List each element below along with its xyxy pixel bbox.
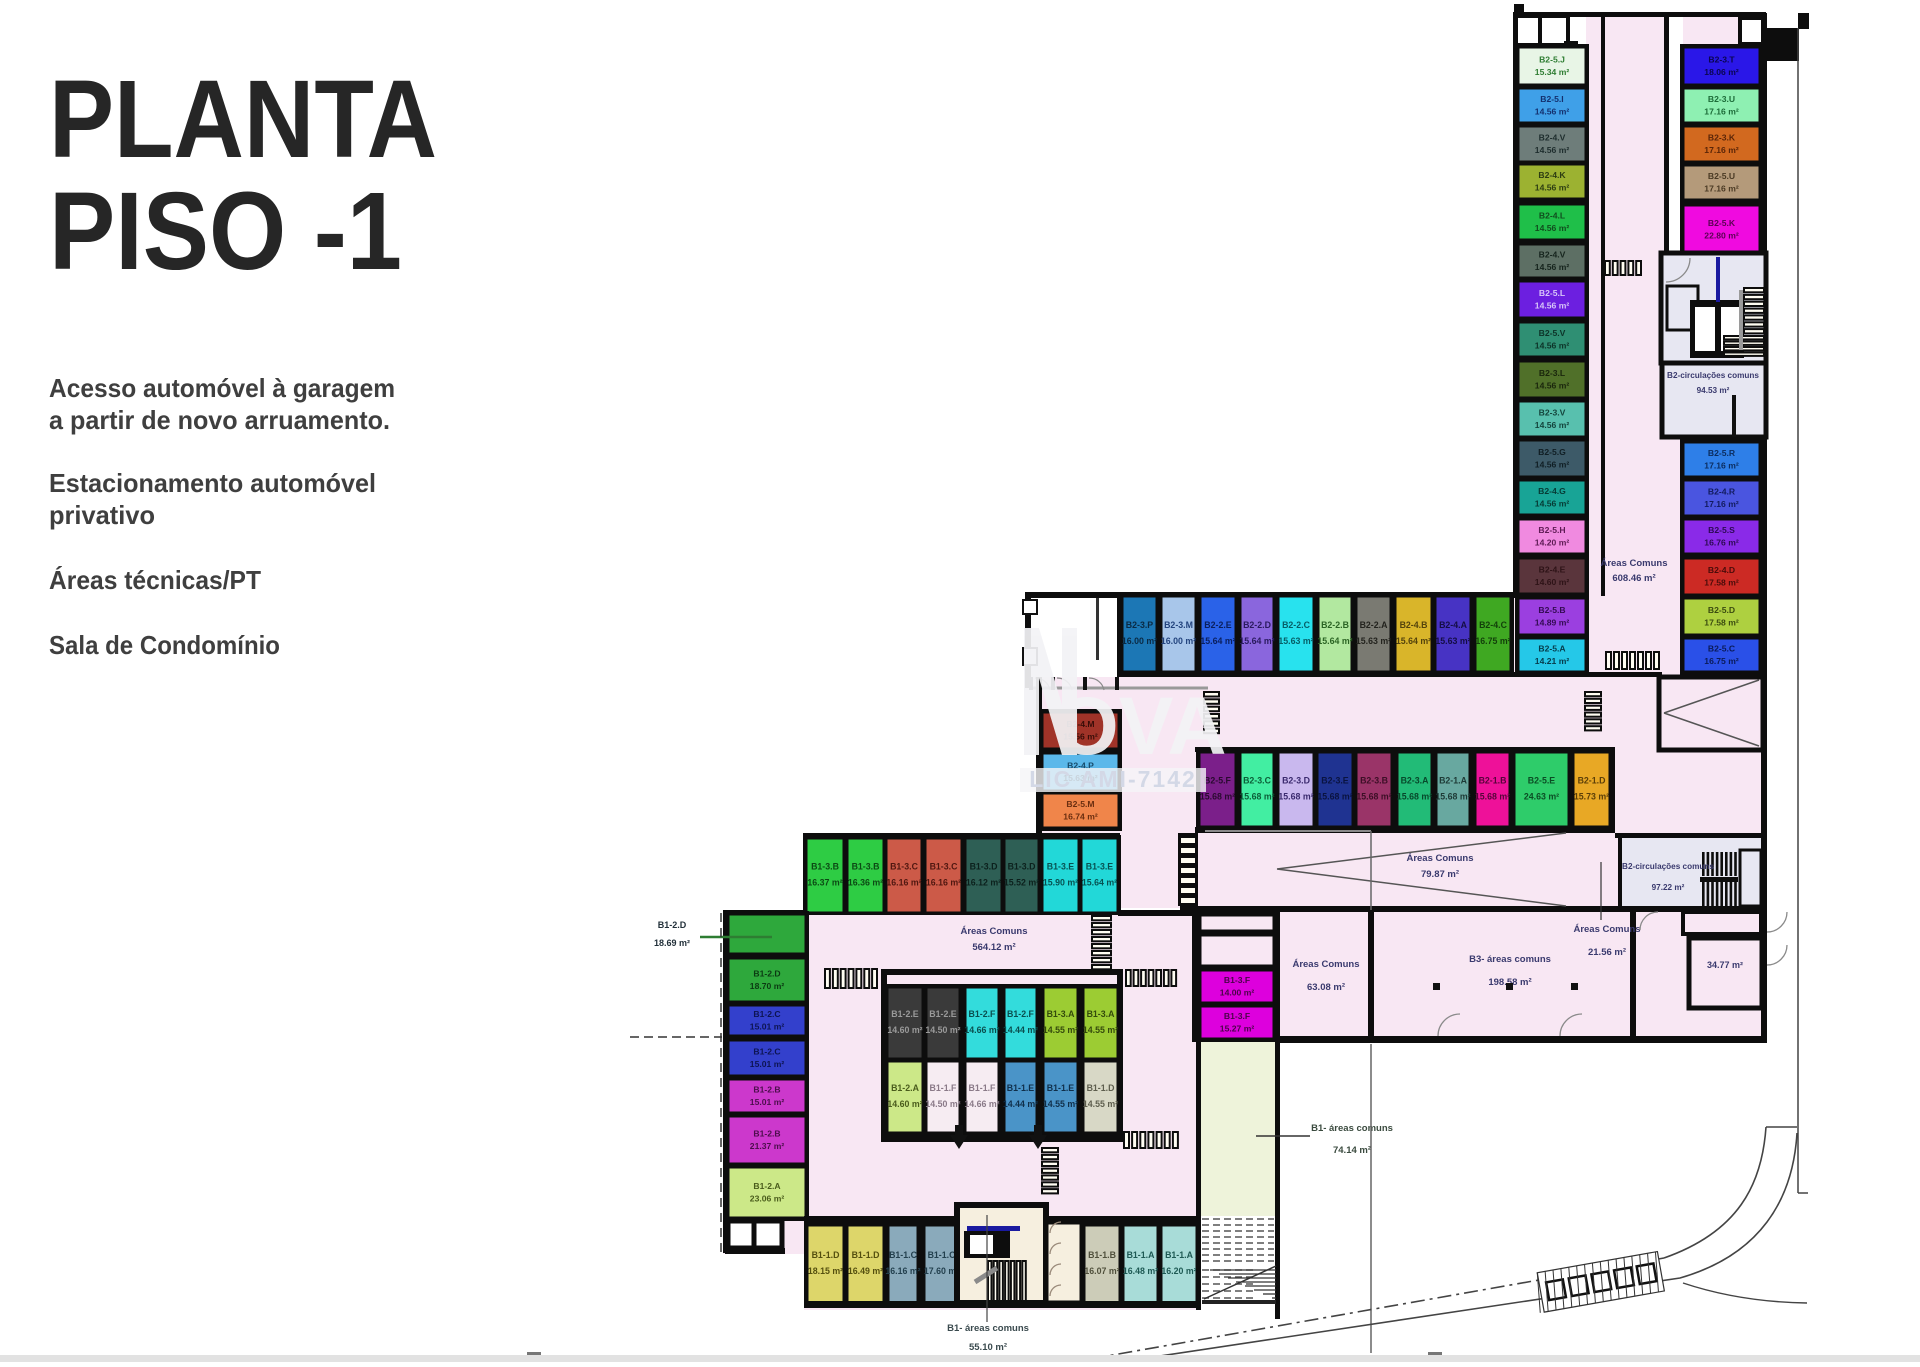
svg-text:14.56 m²: 14.56 m² [1535,341,1570,351]
svg-text:14.56 m²: 14.56 m² [1535,145,1570,155]
svg-text:14.56 m²: 14.56 m² [1535,460,1570,470]
svg-text:B1- áreas comuns: B1- áreas comuns [947,1323,1029,1334]
svg-text:14.20 m²: 14.20 m² [1535,538,1570,548]
svg-text:15.27 m²: 15.27 m² [1220,1024,1255,1034]
svg-text:B2-4.C: B2-4.C [1479,620,1508,630]
svg-text:17.16 m²: 17.16 m² [1704,107,1739,117]
svg-text:16.07 m²: 16.07 m² [1084,1266,1119,1276]
svg-text:B2-5.L: B2-5.L [1539,288,1565,298]
svg-text:608.46 m²: 608.46 m² [1612,573,1655,584]
svg-text:18.15 m²: 18.15 m² [808,1266,843,1276]
svg-text:B1-3.C: B1-3.C [890,862,919,872]
svg-text:B1-1.E: B1-1.E [1047,1083,1075,1093]
svg-text:16.74 m²: 16.74 m² [1063,812,1098,822]
svg-text:B1-1.D: B1-1.D [852,1250,880,1260]
svg-text:B2-4.L: B2-4.L [1539,211,1565,221]
svg-text:17.58 m²: 17.58 m² [1704,618,1739,628]
svg-text:14.21 m²: 14.21 m² [1535,656,1570,666]
svg-text:14.56 m²: 14.56 m² [1535,107,1570,117]
svg-text:14.50 m²: 14.50 m² [925,1099,960,1109]
svg-text:21.56 m²: 21.56 m² [1588,947,1626,958]
svg-text:PLANTA: PLANTA [49,58,437,181]
svg-text:B2-1.B: B2-1.B [1479,776,1507,786]
svg-text:B2-5.D: B2-5.D [1708,605,1735,615]
svg-text:14.60 m²: 14.60 m² [1535,577,1570,587]
svg-text:15.68 m²: 15.68 m² [1397,792,1432,802]
svg-text:B2-3.C: B2-3.C [1243,776,1272,786]
svg-text:Áreas técnicas/PT: Áreas técnicas/PT [49,565,261,595]
svg-text:B2-2.B: B2-2.B [1321,620,1349,630]
svg-text:74.14 m²: 74.14 m² [1333,1145,1371,1156]
svg-text:17.16 m²: 17.16 m² [1704,184,1739,194]
svg-text:PISO -1: PISO -1 [49,170,402,293]
svg-text:15.90 m²: 15.90 m² [1043,878,1078,888]
svg-text:14.56 m²: 14.56 m² [1535,381,1570,391]
svg-text:16.12 m²: 16.12 m² [966,878,1001,888]
svg-text:B1-1.D: B1-1.D [1087,1083,1115,1093]
svg-text:B2-2.D: B2-2.D [1243,620,1271,630]
svg-text:B1-2.E: B1-2.E [929,1009,957,1019]
svg-text:63.08 m²: 63.08 m² [1307,982,1345,993]
svg-text:B1-3.B: B1-3.B [852,862,880,872]
svg-text:B2-3.M: B2-3.M [1164,620,1193,630]
svg-text:14.56 m²: 14.56 m² [1535,499,1570,509]
svg-text:B1-3.A: B1-3.A [1087,1009,1116,1019]
svg-text:15.68 m²: 15.68 m² [1239,792,1274,802]
svg-text:B2-1.D: B2-1.D [1578,776,1606,786]
svg-text:16.16 m²: 16.16 m² [885,1266,920,1276]
svg-text:B1-1.B: B1-1.B [1088,1250,1116,1260]
svg-text:Áreas Comuns: Áreas Comuns [1406,853,1473,864]
svg-text:17.58 m²: 17.58 m² [1704,578,1739,588]
svg-text:B2-2.A: B2-2.A [1360,620,1389,630]
svg-text:B1-3.F: B1-3.F [1224,975,1250,985]
svg-text:16.20 m²: 16.20 m² [1161,1266,1196,1276]
svg-text:B2-1.A: B2-1.A [1439,776,1468,786]
svg-text:B2-5.K: B2-5.K [1708,218,1736,228]
svg-text:B2-5.J: B2-5.J [1539,55,1565,65]
svg-text:B2-4.B: B2-4.B [1400,620,1428,630]
svg-text:B2-3.L: B2-3.L [1539,368,1565,378]
svg-text:B2-5.H: B2-5.H [1538,525,1565,535]
svg-text:B1-2.D: B1-2.D [753,969,780,979]
svg-text:16.48 m²: 16.48 m² [1123,1266,1158,1276]
svg-text:B2-3.A: B2-3.A [1401,776,1430,786]
svg-text:15.68 m²: 15.68 m² [1475,792,1510,802]
svg-text:B1-1.F: B1-1.F [969,1083,997,1093]
svg-text:LIC AMI-7142: LIC AMI-7142 [1029,766,1197,792]
svg-text:15.64 m²: 15.64 m² [1396,636,1431,646]
svg-text:16.00 m²: 16.00 m² [1161,636,1196,646]
svg-text:B1-2.B: B1-2.B [753,1085,780,1095]
svg-text:17.60 m²: 17.60 m² [924,1266,959,1276]
svg-text:14.60 m²: 14.60 m² [887,1025,922,1035]
svg-text:Áreas Comuns: Áreas Comuns [960,926,1027,937]
svg-text:564.12 m²: 564.12 m² [972,942,1015,953]
svg-text:17.16 m²: 17.16 m² [1704,461,1739,471]
svg-text:16.75 m²: 16.75 m² [1475,636,1510,646]
svg-text:B2-4.V: B2-4.V [1539,250,1566,260]
svg-text:14.55 m²: 14.55 m² [1043,1025,1078,1035]
svg-text:B1-3.D: B1-3.D [970,862,998,872]
svg-text:B2-3.U: B2-3.U [1708,94,1735,104]
svg-text:B1-3.B: B1-3.B [811,862,839,872]
svg-text:B2-2.E: B2-2.E [1204,620,1232,630]
svg-text:15.73 m²: 15.73 m² [1574,792,1609,802]
svg-text:B2-5.A: B2-5.A [1538,644,1565,654]
svg-text:B1-3.E: B1-3.E [1047,862,1075,872]
svg-text:B1-3.D: B1-3.D [1008,862,1036,872]
svg-text:B2-3.K: B2-3.K [1708,133,1736,143]
svg-text:B2-3.B: B2-3.B [1360,776,1388,786]
svg-text:18.69 m²: 18.69 m² [654,938,690,948]
svg-text:18.70 m²: 18.70 m² [750,981,785,991]
svg-text:B2-3.P: B2-3.P [1126,620,1154,630]
svg-text:B1-2.A: B1-2.A [753,1181,780,1191]
svg-text:15.64 m²: 15.64 m² [1082,878,1117,888]
svg-text:15.64 m²: 15.64 m² [1317,636,1352,646]
svg-text:15.68 m²: 15.68 m² [1317,792,1352,802]
svg-text:34.77 m²: 34.77 m² [1707,960,1743,970]
svg-text:OVA: OVA [1055,681,1227,772]
svg-text:16.49 m²: 16.49 m² [848,1266,883,1276]
svg-text:B1-1.E: B1-1.E [1007,1083,1035,1093]
svg-text:B2-5.M: B2-5.M [1066,799,1094,809]
svg-text:B2-5.B: B2-5.B [1538,605,1565,615]
svg-text:B2-4.V: B2-4.V [1539,133,1566,143]
svg-text:15.63 m²: 15.63 m² [1278,636,1313,646]
svg-text:B1-1.C: B1-1.C [928,1250,957,1260]
svg-text:14.89 m²: 14.89 m² [1535,618,1570,628]
svg-text:14.00 m²: 14.00 m² [1220,988,1255,998]
svg-text:23.06 m²: 23.06 m² [750,1194,785,1204]
svg-text:24.63 m²: 24.63 m² [1524,792,1559,802]
svg-text:a partir de novo arruamento.: a partir de novo arruamento. [49,405,390,435]
svg-text:B2-4.K: B2-4.K [1538,170,1566,180]
svg-text:14.56 m²: 14.56 m² [1535,420,1570,430]
svg-text:B2-5.R: B2-5.R [1708,448,1736,458]
svg-text:B2-5.I: B2-5.I [1540,94,1563,104]
svg-text:15.01 m²: 15.01 m² [750,1059,785,1069]
svg-text:15.01 m²: 15.01 m² [750,1022,785,1032]
svg-text:B2-4.E: B2-4.E [1539,565,1566,575]
svg-text:Áreas Comuns: Áreas Comuns [1573,924,1640,935]
svg-text:B1-2.F: B1-2.F [969,1009,997,1019]
svg-text:B2-4.D: B2-4.D [1708,565,1735,575]
svg-text:17.16 m²: 17.16 m² [1704,499,1739,509]
svg-text:15.68 m²: 15.68 m² [1278,792,1313,802]
svg-text:B1-1.F: B1-1.F [930,1083,958,1093]
svg-text:B2-3.V: B2-3.V [1539,408,1566,418]
svg-text:B2-3.T: B2-3.T [1708,55,1735,65]
svg-text:14.50 m²: 14.50 m² [925,1025,960,1035]
svg-text:14.44 m²: 14.44 m² [1003,1099,1038,1109]
svg-text:B2-5.V: B2-5.V [1539,328,1566,338]
svg-text:94.53 m²: 94.53 m² [1697,386,1730,395]
svg-text:14.66 m²: 14.66 m² [964,1099,999,1109]
svg-text:B1-3.F: B1-3.F [1224,1011,1250,1021]
svg-text:B1-2.A: B1-2.A [891,1083,920,1093]
svg-text:B1-3.E: B1-3.E [1086,862,1114,872]
svg-text:B2-circulações comuns: B2-circulações comuns [1667,371,1759,380]
svg-text:B2-2.C: B2-2.C [1282,620,1311,630]
svg-text:Sala de Condomínio: Sala de Condomínio [49,630,280,660]
svg-text:97.22 m²: 97.22 m² [1652,883,1685,892]
svg-text:B2-5.C: B2-5.C [1708,644,1735,654]
svg-text:15.01 m²: 15.01 m² [750,1097,785,1107]
svg-text:B1-2.E: B1-2.E [891,1009,919,1019]
svg-text:B1-2.D: B1-2.D [658,920,687,930]
svg-text:14.55 m²: 14.55 m² [1083,1099,1118,1109]
svg-text:Áreas Comuns: Áreas Comuns [1600,558,1667,569]
svg-text:B2-4.A: B2-4.A [1439,620,1468,630]
svg-text:B2-5.S: B2-5.S [1708,525,1735,535]
svg-text:16.76 m²: 16.76 m² [1704,538,1739,548]
svg-text:Acesso automóvel à garagem: Acesso automóvel à garagem [49,373,395,403]
svg-text:B1-3.A: B1-3.A [1047,1009,1076,1019]
svg-text:15.63 m²: 15.63 m² [1435,636,1470,646]
svg-text:B2-5.F: B2-5.F [1204,776,1232,786]
svg-text:B1-1.A: B1-1.A [1165,1250,1194,1260]
svg-text:B2-circulações comuns: B2-circulações comuns [1622,862,1714,871]
svg-text:16.37 m²: 16.37 m² [807,878,842,888]
svg-text:16.36 m²: 16.36 m² [848,878,883,888]
svg-text:14.56 m²: 14.56 m² [1535,183,1570,193]
svg-text:B1-1.A: B1-1.A [1127,1250,1156,1260]
svg-text:Áreas Comuns: Áreas Comuns [1292,959,1359,970]
svg-text:B1- áreas comuns: B1- áreas comuns [1311,1123,1393,1134]
svg-text:14.56 m²: 14.56 m² [1535,223,1570,233]
svg-text:16.75 m²: 16.75 m² [1704,656,1739,666]
svg-text:B2-3.E: B2-3.E [1321,776,1349,786]
svg-text:15.64 m²: 15.64 m² [1239,636,1274,646]
svg-text:B3- áreas comuns: B3- áreas comuns [1469,954,1551,965]
svg-text:privativo: privativo [49,500,155,530]
svg-text:22.80 m²: 22.80 m² [1704,231,1739,241]
svg-text:B1-2.C: B1-2.C [753,1047,780,1057]
svg-text:16.00 m²: 16.00 m² [1122,636,1157,646]
svg-text:14.60 m²: 14.60 m² [887,1099,922,1109]
svg-text:17.16 m²: 17.16 m² [1704,145,1739,155]
svg-text:B2-4.G: B2-4.G [1538,486,1566,496]
svg-text:B1-1.C: B1-1.C [889,1250,918,1260]
svg-text:B1-2.C: B1-2.C [753,1009,780,1019]
svg-text:14.66 m²: 14.66 m² [964,1025,999,1035]
svg-text:14.44 m²: 14.44 m² [1003,1025,1038,1035]
svg-text:14.55 m²: 14.55 m² [1043,1099,1078,1109]
svg-text:18.06 m²: 18.06 m² [1704,67,1739,77]
svg-text:B1-1.D: B1-1.D [812,1250,840,1260]
svg-text:15.68 m²: 15.68 m² [1356,792,1391,802]
svg-text:15.52 m²: 15.52 m² [1004,878,1039,888]
svg-text:15.64 m²: 15.64 m² [1200,636,1235,646]
svg-text:14.55 m²: 14.55 m² [1083,1025,1118,1035]
svg-text:15.68 m²: 15.68 m² [1435,792,1470,802]
svg-text:14.56 m²: 14.56 m² [1535,262,1570,272]
svg-text:21.37 m²: 21.37 m² [750,1141,785,1151]
svg-text:16.16 m²: 16.16 m² [886,878,921,888]
svg-text:16.16 m²: 16.16 m² [926,878,961,888]
svg-text:B2-5.U: B2-5.U [1708,171,1735,181]
svg-text:B2-5.G: B2-5.G [1538,447,1566,457]
svg-text:B1-2.B: B1-2.B [753,1129,780,1139]
svg-text:55.10 m²: 55.10 m² [969,1342,1007,1353]
svg-text:Estacionamento automóvel: Estacionamento automóvel [49,468,376,498]
svg-text:B1-3.C: B1-3.C [930,862,959,872]
svg-text:79.87 m²: 79.87 m² [1421,869,1459,880]
svg-text:B1-2.F: B1-2.F [1007,1009,1035,1019]
svg-text:15.34 m²: 15.34 m² [1535,67,1570,77]
svg-text:B2-5.E: B2-5.E [1528,776,1556,786]
svg-text:15.68 m²: 15.68 m² [1200,792,1235,802]
svg-text:B2-3.D: B2-3.D [1282,776,1310,786]
svg-text:15.63 m²: 15.63 m² [1356,636,1391,646]
svg-text:14.56 m²: 14.56 m² [1535,301,1570,311]
svg-text:B2-4.R: B2-4.R [1708,487,1736,497]
